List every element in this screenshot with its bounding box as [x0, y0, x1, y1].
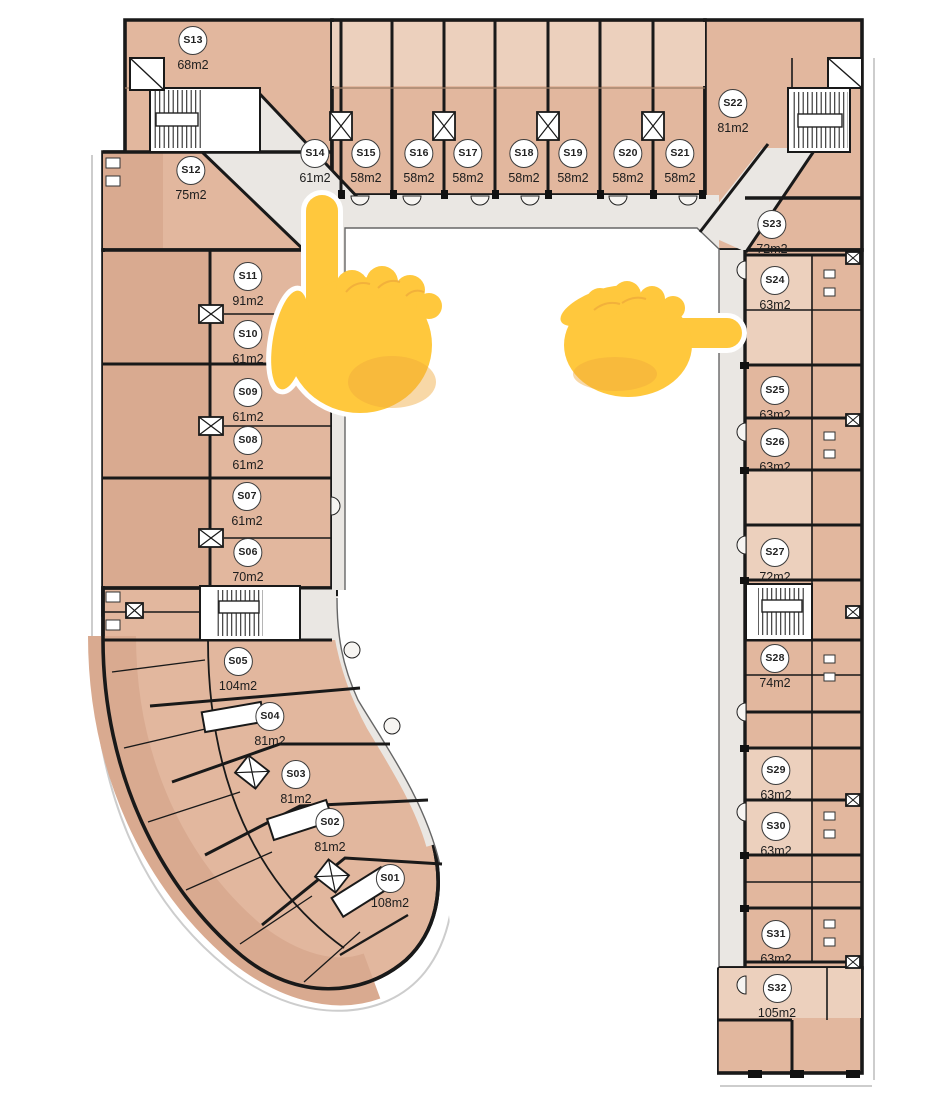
- unit-area-label: 61m2: [232, 458, 263, 472]
- unit-number-badge: S10: [234, 320, 263, 349]
- unit-marker-s08[interactable]: S0861m2: [232, 426, 263, 472]
- unit-number-badge: S26: [761, 428, 790, 457]
- unit-area-label: 58m2: [350, 171, 381, 185]
- unit-area-label: 61m2: [231, 514, 262, 528]
- unit-marker-s31[interactable]: S3163m2: [760, 920, 791, 966]
- unit-area-label: 74m2: [759, 676, 790, 690]
- unit-number-badge: S29: [762, 756, 791, 785]
- unit-area-label: 63m2: [760, 952, 791, 966]
- unit-area-label: 58m2: [557, 171, 588, 185]
- unit-area-label: 72m2: [756, 242, 787, 256]
- unit-number-badge: S05: [223, 647, 252, 676]
- unit-marker-s23[interactable]: S2372m2: [756, 210, 787, 256]
- unit-area-label: 58m2: [508, 171, 539, 185]
- unit-number-badge: S31: [762, 920, 791, 949]
- unit-marker-s06[interactable]: S0670m2: [232, 538, 263, 584]
- unit-number-badge: S13: [179, 26, 208, 55]
- unit-area-label: 70m2: [232, 570, 263, 584]
- unit-number-badge: S01: [375, 864, 404, 893]
- unit-number-badge: S27: [761, 538, 790, 567]
- unit-marker-s05[interactable]: S05104m2: [219, 647, 257, 693]
- unit-number-badge: S04: [256, 702, 285, 731]
- unit-number-badge: S20: [614, 139, 643, 168]
- unit-number-badge: S23: [758, 210, 787, 239]
- unit-area-label: 61m2: [232, 352, 263, 366]
- unit-area-label: 81m2: [314, 840, 345, 854]
- unit-number-badge: S32: [762, 974, 791, 1003]
- unit-area-label: 104m2: [219, 679, 257, 693]
- unit-marker-s15[interactable]: S1558m2: [350, 139, 381, 185]
- unit-marker-s09[interactable]: S0961m2: [232, 378, 263, 424]
- unit-number-badge: S21: [666, 139, 695, 168]
- unit-marker-s19[interactable]: S1958m2: [557, 139, 588, 185]
- unit-marker-s14[interactable]: S1461m2: [299, 139, 330, 185]
- unit-marker-s26[interactable]: S2663m2: [759, 428, 790, 474]
- unit-marker-layer: S01108m2S0281m2S0381m2S0481m2S05104m2S06…: [0, 0, 948, 1094]
- unit-number-badge: S14: [301, 139, 330, 168]
- unit-area-label: 68m2: [177, 58, 208, 72]
- unit-area-label: 58m2: [664, 171, 695, 185]
- unit-marker-s30[interactable]: S3063m2: [760, 812, 791, 858]
- unit-marker-s24[interactable]: S2463m2: [759, 266, 790, 312]
- unit-number-badge: S18: [510, 139, 539, 168]
- unit-number-badge: S12: [177, 156, 206, 185]
- unit-marker-s04[interactable]: S0481m2: [254, 702, 285, 748]
- unit-marker-s20[interactable]: S2058m2: [612, 139, 643, 185]
- unit-marker-s16[interactable]: S1658m2: [403, 139, 434, 185]
- unit-area-label: 58m2: [612, 171, 643, 185]
- unit-area-label: 91m2: [232, 294, 263, 308]
- unit-marker-s11[interactable]: S1191m2: [232, 262, 263, 308]
- unit-marker-s29[interactable]: S2963m2: [760, 756, 791, 802]
- unit-number-badge: S15: [352, 139, 381, 168]
- unit-area-label: 72m2: [759, 570, 790, 584]
- unit-area-label: 63m2: [759, 460, 790, 474]
- unit-area-label: 63m2: [759, 408, 790, 422]
- unit-marker-s27[interactable]: S2772m2: [759, 538, 790, 584]
- unit-area-label: 61m2: [232, 410, 263, 424]
- unit-number-badge: S30: [762, 812, 791, 841]
- unit-area-label: 105m2: [758, 1006, 796, 1020]
- unit-marker-s07[interactable]: S0761m2: [231, 482, 262, 528]
- unit-area-label: 58m2: [452, 171, 483, 185]
- unit-marker-s03[interactable]: S0381m2: [280, 760, 311, 806]
- unit-marker-s02[interactable]: S0281m2: [314, 808, 345, 854]
- unit-area-label: 81m2: [717, 121, 748, 135]
- unit-marker-s01[interactable]: S01108m2: [371, 864, 409, 910]
- unit-area-label: 63m2: [760, 844, 791, 858]
- unit-number-badge: S17: [454, 139, 483, 168]
- unit-marker-s21[interactable]: S2158m2: [664, 139, 695, 185]
- unit-marker-s28[interactable]: S2874m2: [759, 644, 790, 690]
- unit-number-badge: S02: [316, 808, 345, 837]
- unit-marker-s12[interactable]: S1275m2: [175, 156, 206, 202]
- floor-plan-page: S01108m2S0281m2S0381m2S0481m2S05104m2S06…: [0, 0, 948, 1094]
- unit-area-label: 81m2: [280, 792, 311, 806]
- unit-marker-s13[interactable]: S1368m2: [177, 26, 208, 72]
- unit-number-badge: S07: [233, 482, 262, 511]
- unit-area-label: 61m2: [299, 171, 330, 185]
- unit-number-badge: S16: [405, 139, 434, 168]
- unit-area-label: 81m2: [254, 734, 285, 748]
- unit-number-badge: S24: [761, 266, 790, 295]
- unit-area-label: 63m2: [759, 298, 790, 312]
- unit-marker-s10[interactable]: S1061m2: [232, 320, 263, 366]
- unit-marker-s25[interactable]: S2563m2: [759, 376, 790, 422]
- unit-number-badge: S08: [234, 426, 263, 455]
- unit-number-badge: S06: [234, 538, 263, 567]
- unit-marker-s22[interactable]: S2281m2: [717, 89, 748, 135]
- unit-number-badge: S28: [761, 644, 790, 673]
- unit-number-badge: S25: [761, 376, 790, 405]
- unit-number-badge: S03: [282, 760, 311, 789]
- unit-marker-s18[interactable]: S1858m2: [508, 139, 539, 185]
- unit-area-label: 63m2: [760, 788, 791, 802]
- unit-number-badge: S19: [559, 139, 588, 168]
- unit-number-badge: S11: [234, 262, 263, 291]
- unit-number-badge: S09: [234, 378, 263, 407]
- unit-number-badge: S22: [719, 89, 748, 118]
- unit-area-label: 75m2: [175, 188, 206, 202]
- unit-area-label: 58m2: [403, 171, 434, 185]
- unit-marker-s32[interactable]: S32105m2: [758, 974, 796, 1020]
- unit-marker-s17[interactable]: S1758m2: [452, 139, 483, 185]
- unit-area-label: 108m2: [371, 896, 409, 910]
